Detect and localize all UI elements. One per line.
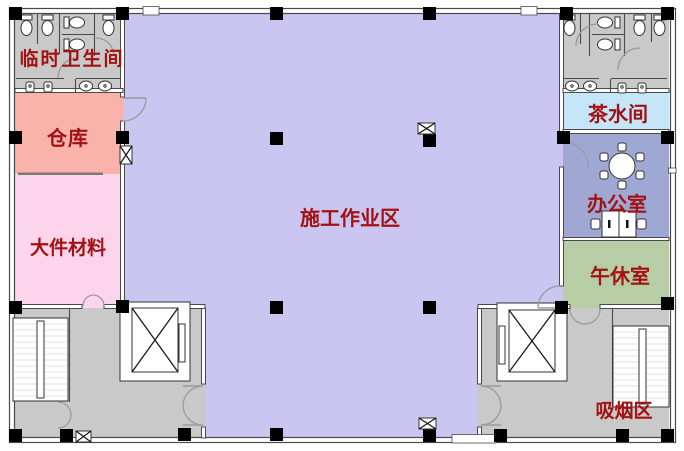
label-nap-room: 午休室 <box>566 266 674 287</box>
label-temporary-toilet: 临时卫生间 <box>10 50 134 70</box>
label-smoking-area: 吸烟区 <box>570 402 678 422</box>
room-toilet-top-right <box>563 14 669 91</box>
label-construction-area: 施工作业区 <box>285 208 415 229</box>
label-tea-room: 茶水间 <box>566 104 670 125</box>
floor-plan: 临时卫生间 仓库 大件材料 施工作业区 茶水间 办公室 午休室 吸烟区 <box>0 0 684 451</box>
corridor-bottom-left <box>15 308 205 437</box>
room-office <box>563 132 669 239</box>
label-office: 办公室 <box>563 194 671 215</box>
label-large-materials: 大件材料 <box>12 239 124 259</box>
label-warehouse: 仓库 <box>15 128 121 149</box>
